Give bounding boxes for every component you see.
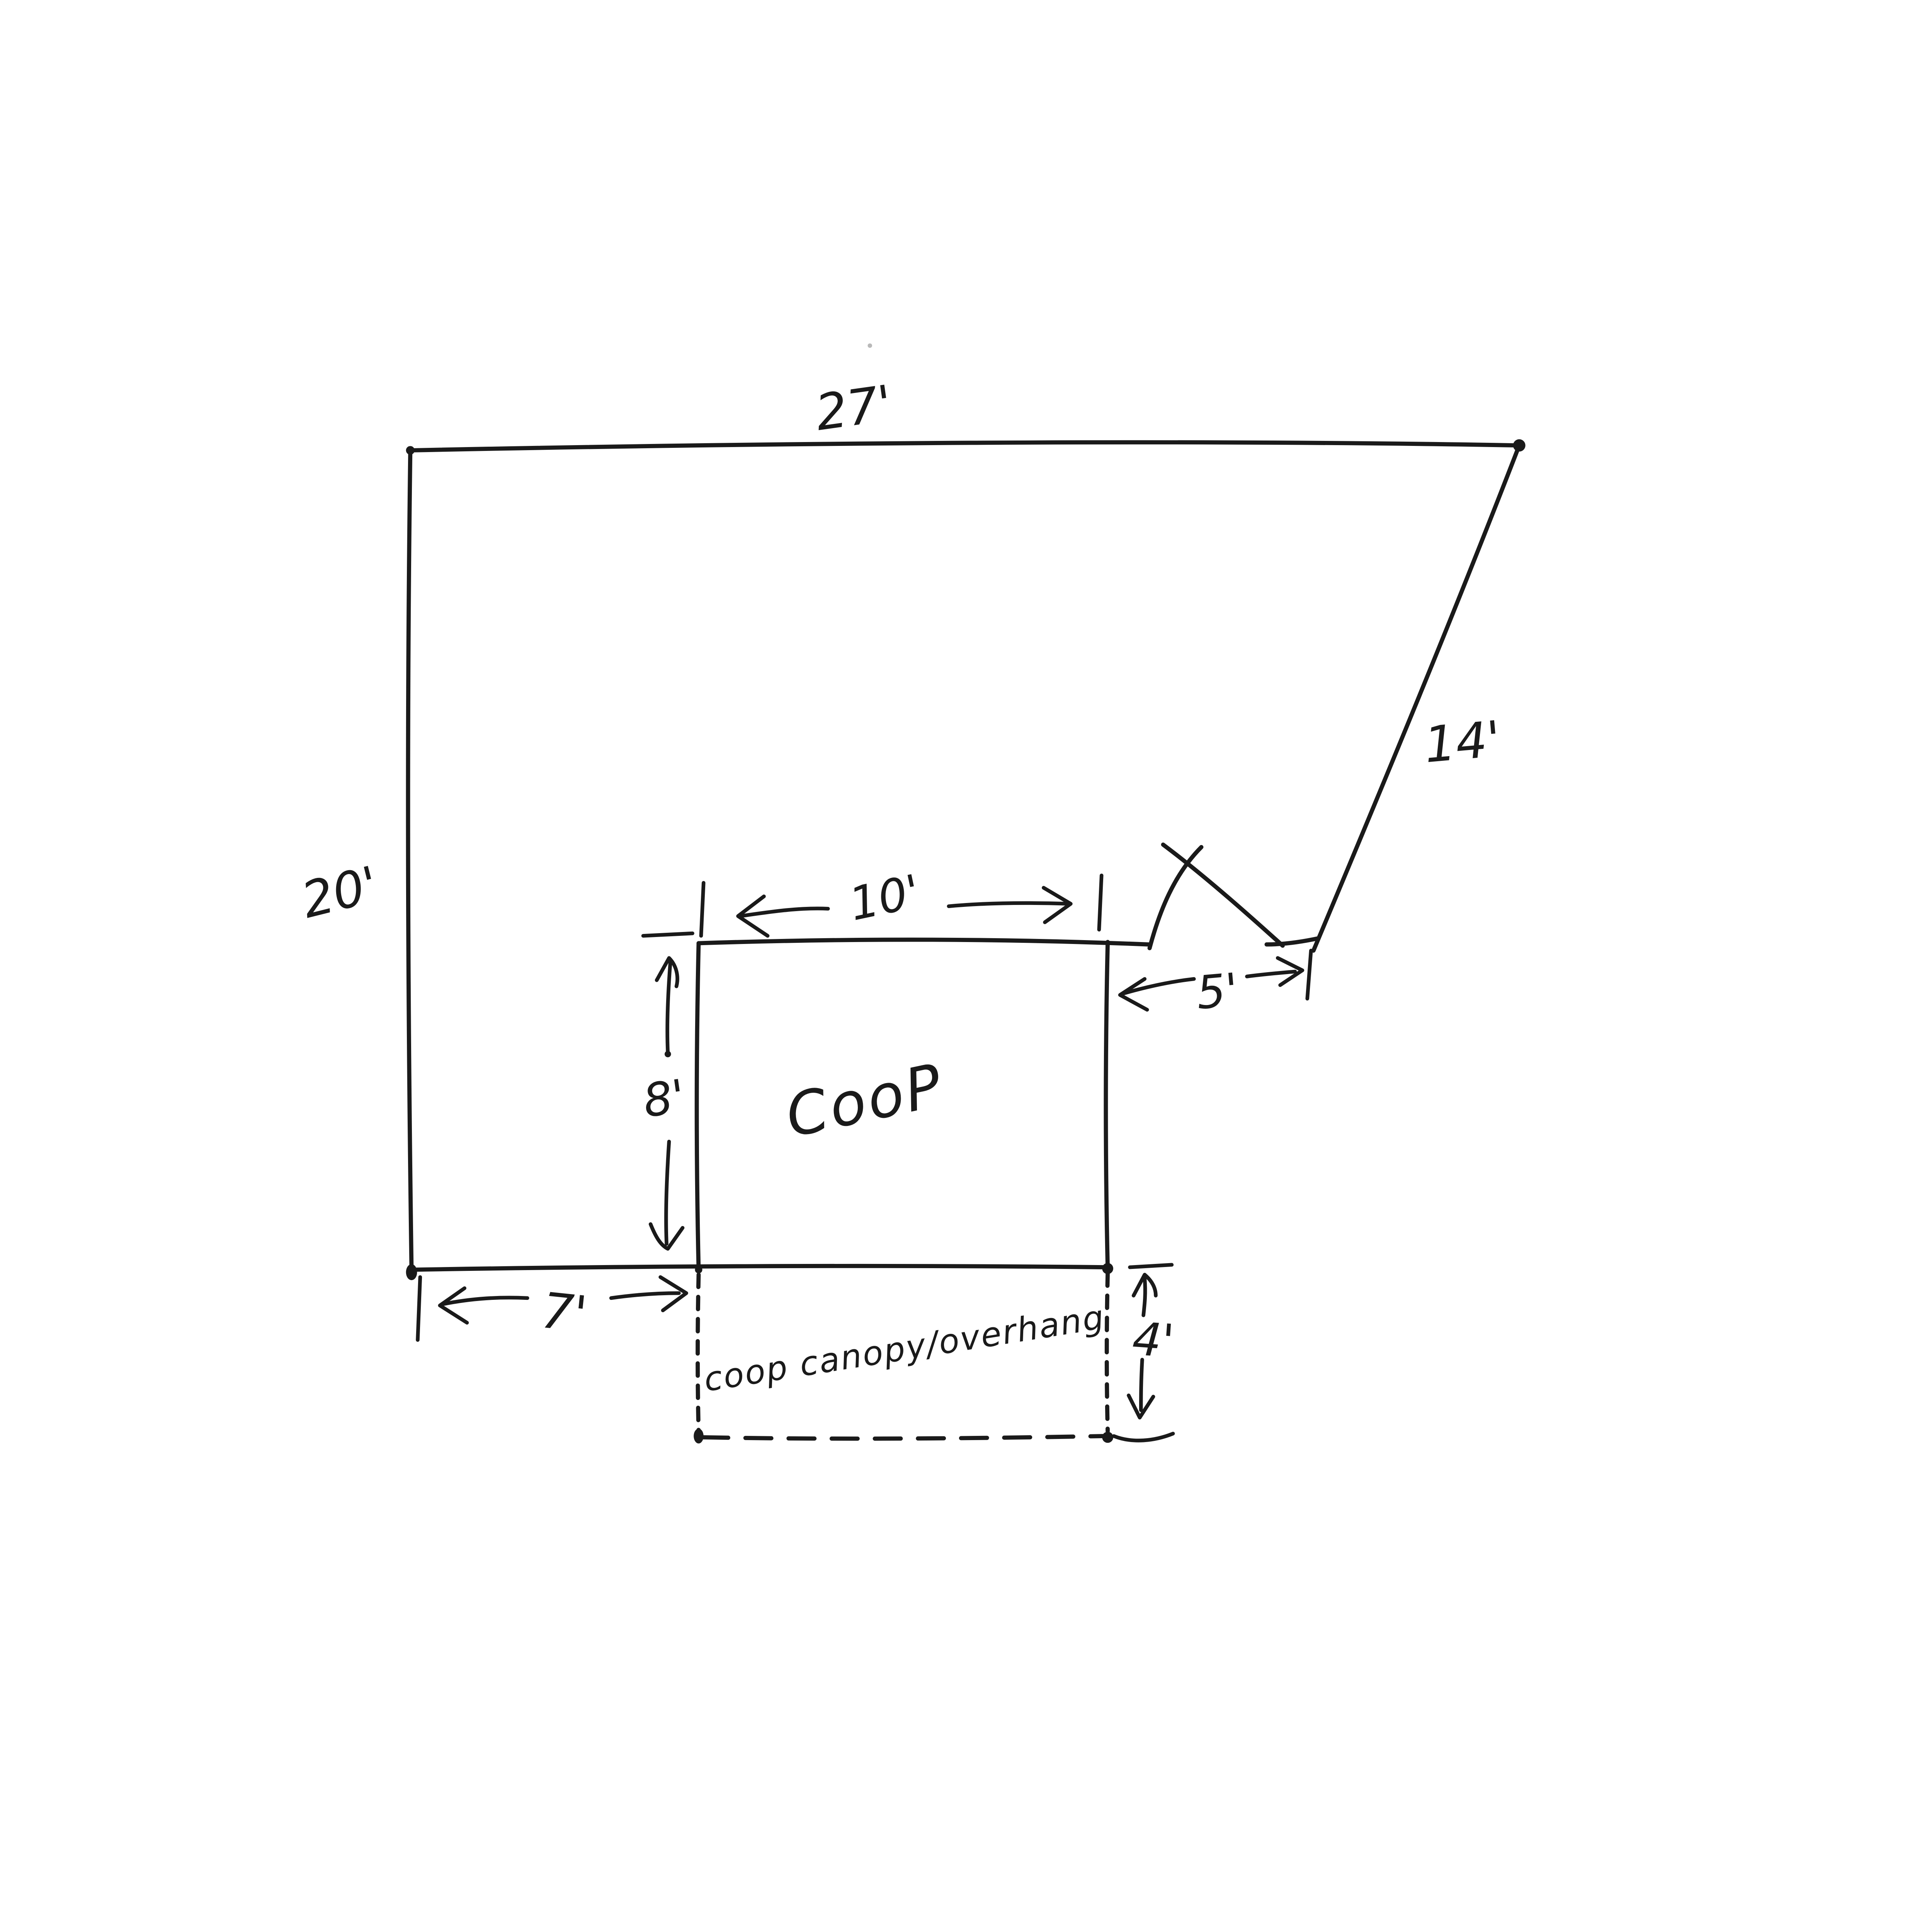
dim-coop-height-arrow-up-shaft [667, 963, 670, 1053]
dim-coop-height-label: 8' [640, 1069, 689, 1128]
dim-coop-to-fence-arrow-right-shaft [1247, 971, 1295, 976]
canopy-left-edge [698, 1275, 699, 1432]
dim-coop-height: 8' [640, 933, 692, 1248]
dim-yard-diagonal: 14' [1422, 711, 1503, 774]
yard-top-edge [410, 442, 1519, 451]
dim-coop-height-arrow-down-shaft [666, 1141, 669, 1244]
coop-bottom-left-dot [695, 1266, 702, 1273]
dim-coop-to-fence-tick-right [1307, 951, 1311, 998]
dim-canopy-depth-arrow-up-shaft [1143, 1278, 1145, 1315]
canopy-bottom-left-dot [694, 1429, 704, 1443]
scan-speck [868, 344, 872, 348]
coop-outline: CooP [695, 940, 1148, 1274]
dim-coop-width-label: 10' [845, 864, 925, 931]
corner-dot-top-right [1513, 439, 1526, 452]
dim-yard-top-width: 27' [812, 375, 896, 442]
dim-canopy-depth-bottom-swoosh [1114, 1434, 1173, 1440]
dim-canopy-depth-tick-top [1130, 1265, 1172, 1267]
yard-left-edge [408, 450, 412, 1270]
dim-coop-width: 10' [701, 864, 1101, 936]
dim-corner-to-coop: 7' [418, 1277, 686, 1344]
canopy-label: coop canopy/overhang [701, 1298, 1107, 1400]
dim-coop-height-arrow-up-end-dot [665, 1051, 671, 1058]
canopy-outline: coop canopy/overhang [694, 1274, 1113, 1444]
dim-canopy-depth-arrow-down-shaft [1141, 1360, 1142, 1410]
canopy-bottom-right-dot [1102, 1432, 1113, 1443]
dim-coop-width-arrow-left-shaft [740, 908, 828, 916]
dim-coop-width-tick-right [1099, 876, 1101, 930]
dim-corner-to-coop-arrow-right-shaft [611, 1293, 679, 1298]
dim-corner-to-coop-tick-left [418, 1277, 420, 1340]
corner-dot-bottom-left [406, 1264, 417, 1280]
dim-coop-height-tick-top [643, 933, 693, 935]
dim-coop-width-arrow-right-shaft [949, 903, 1068, 906]
canopy-right-edge [1107, 1274, 1107, 1431]
dim-yard-left-height: 20' [296, 856, 384, 930]
coop-top-edge [699, 940, 1148, 944]
coop-floor-plan-sketch: CooP coop canopy/overhang 27' 20' 14' [0, 0, 1932, 1932]
scanned-paper: CooP coop canopy/overhang 27' 20' 14' [0, 0, 1932, 1932]
dim-corner-to-coop-arrow-left-shaft [442, 1298, 527, 1304]
gate-squiggle [1150, 845, 1282, 948]
dim-yard-diagonal-label: 14' [1422, 711, 1503, 774]
dim-corner-to-coop-label: 7' [539, 1282, 590, 1344]
gate-squiggle-stroke-up [1150, 847, 1201, 948]
dim-canopy-depth: 4' [1114, 1265, 1176, 1440]
yard-diagonal-edge [1313, 446, 1519, 951]
canopy-bottom-edge [702, 1436, 1103, 1439]
yard-outline [406, 439, 1526, 1280]
dim-yard-top-width-label: 27' [812, 375, 896, 442]
coop-right-edge [1106, 942, 1108, 1269]
dim-coop-height-arrow-up-head [657, 958, 677, 986]
corner-dot-top-left [406, 446, 415, 454]
dim-canopy-depth-label: 4' [1131, 1312, 1176, 1368]
coop-label: CooP [780, 1051, 950, 1151]
dim-coop-to-fence-label: 5' [1194, 963, 1240, 1020]
coop-left-edge [697, 943, 699, 1270]
yard-bottom-edge [412, 1266, 1108, 1270]
gate-squiggle-stroke-down [1163, 845, 1282, 946]
dim-coop-to-fence-arrow-left-head [1120, 979, 1147, 1010]
dim-coop-to-fence: 5' [1120, 951, 1311, 1020]
dim-coop-width-tick-left [701, 883, 703, 936]
dim-yard-left-height-label: 20' [296, 856, 384, 930]
